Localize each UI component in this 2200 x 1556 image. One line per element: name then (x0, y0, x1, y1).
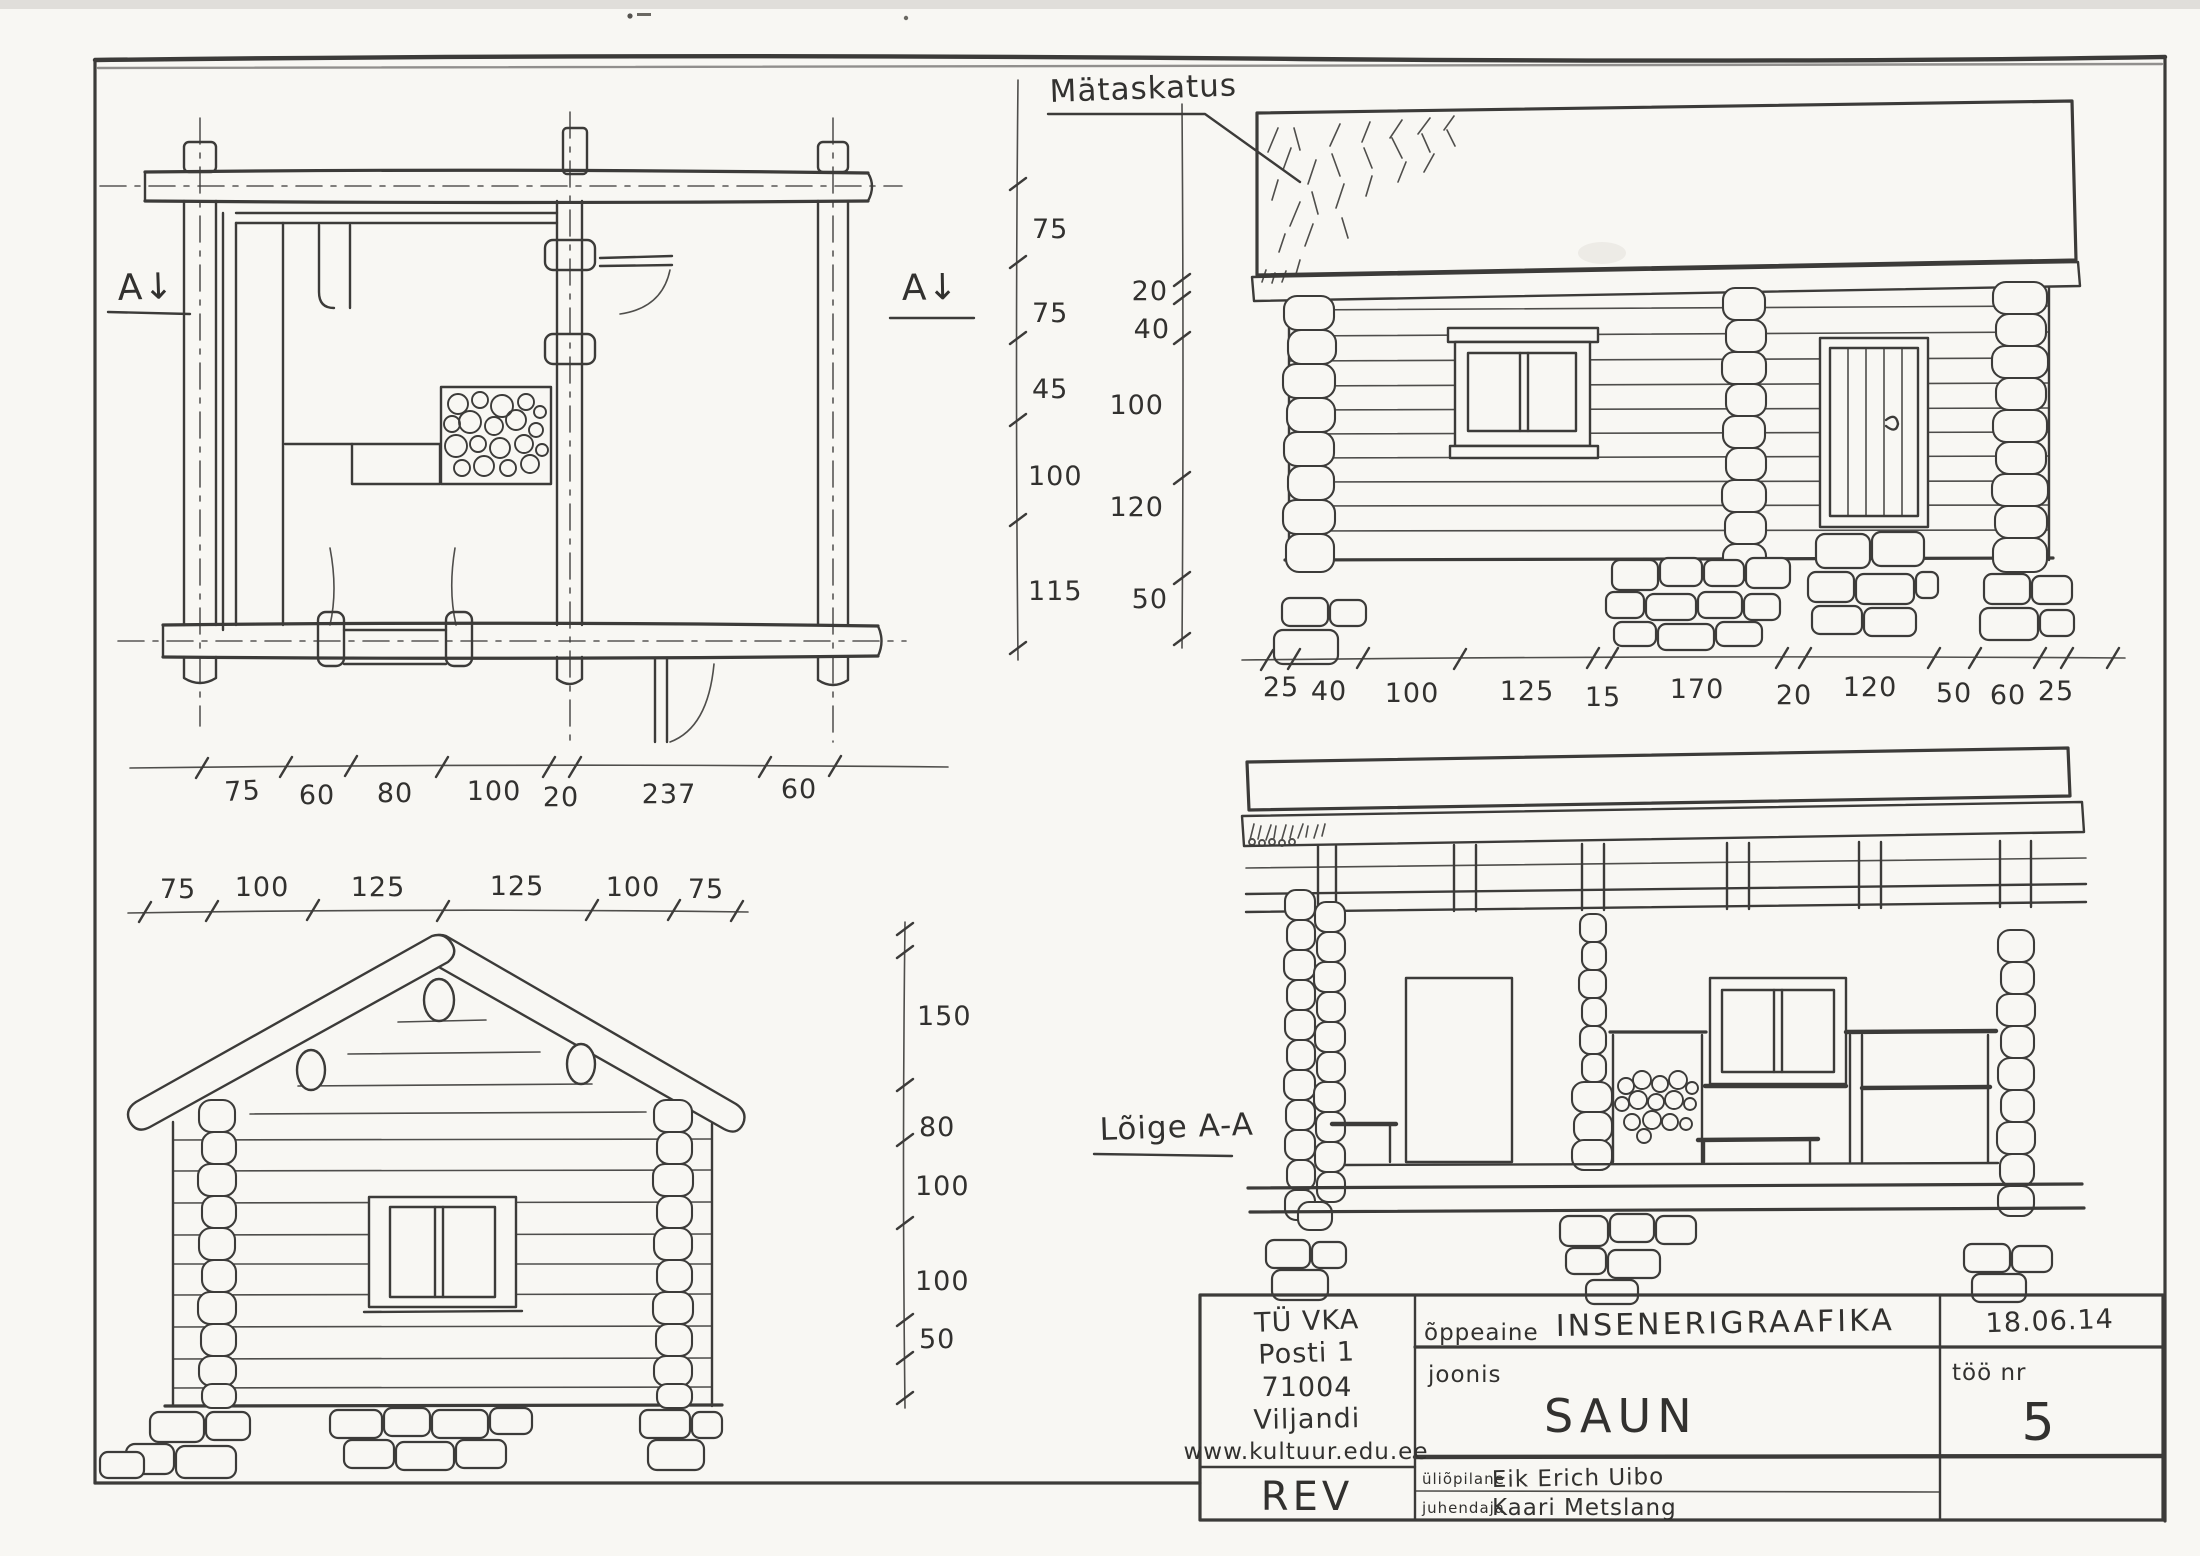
dim-label: 75 (160, 874, 196, 905)
left-stone-post (198, 1100, 236, 1408)
dim-label: 100 (915, 1171, 970, 1202)
section-cut-label: A↓ (901, 267, 959, 309)
section-a-a: Lõige A-A (1094, 748, 2086, 1304)
dim-label: 125 (1500, 676, 1555, 707)
dim-label: 115 (1028, 576, 1083, 607)
ridge-peg (424, 979, 454, 1021)
dim-label: 60 (781, 774, 817, 805)
dim-label: 20 (543, 782, 579, 813)
section-sill-band (1248, 1184, 2084, 1212)
dim-label: 45 (1032, 374, 1068, 405)
dim-label: 75 (688, 874, 724, 905)
elevation-log-wall (1285, 288, 2053, 560)
subject-value: INSENERIGRAAFIKA (1556, 1303, 1895, 1344)
elevation-stone-posts (1283, 282, 2048, 580)
section-heater-column (1572, 914, 1612, 1170)
section-right-pillar (1997, 930, 2035, 1216)
advisor-name: Kaari Metslang (1492, 1495, 1677, 1521)
dim-label: 50 (919, 1324, 955, 1355)
org-zip: 71004 (1262, 1372, 1353, 1403)
dim-label: 100 (235, 872, 290, 903)
org-name: TÜ VKA (1253, 1303, 1360, 1339)
elevation-door (1820, 338, 1928, 527)
section-floor (1345, 1163, 1998, 1165)
org-city: Viljandi (1253, 1403, 1360, 1436)
dim-label: 125 (351, 872, 406, 903)
section-roof (1242, 748, 2084, 846)
drawing-label: joonis (1427, 1362, 1501, 1388)
plan-dimension-line: 75 60 80 100 20 237 60 (130, 756, 948, 813)
elevation-window (1448, 328, 1598, 458)
dim-label: 20 (1776, 680, 1812, 711)
plan-stove-platform (285, 444, 440, 484)
front-elevation: Mätaskatus 20 40 100 120 50 25 40 100 12… (1048, 67, 2125, 713)
title-block: TÜ VKA Posti 1 71004 Viljandi www.kultuu… (1184, 1295, 2163, 1521)
section-door-panel (1406, 978, 1512, 1162)
heater-box (1610, 1032, 1706, 1162)
gable-height-scale: 150 80 100 100 50 (897, 922, 972, 1408)
dim-label: 80 (919, 1112, 955, 1143)
sauna-technical-drawing: A↓ A↓ 75 60 80 100 20 237 60 75 75 45 10… (0, 0, 2200, 1556)
dim-label: 150 (917, 1001, 972, 1032)
sod-edge-tufts (1249, 824, 1325, 846)
purlin-peg (297, 1050, 325, 1090)
elevation-dimension-line: 25 40 100 125 15 170 20 120 50 60 25 (1242, 648, 2125, 713)
dim-label: 125 (490, 871, 545, 902)
section-cut-marker-left: A↓ (108, 266, 190, 314)
floor-plan: A↓ A↓ 75 60 80 100 20 237 60 (100, 112, 974, 813)
scanned-drawing-sheet: A↓ A↓ 75 60 80 100 20 237 60 75 75 45 10… (0, 0, 2200, 1556)
work-number-value: 5 (2021, 1393, 2054, 1453)
section-foundations (1266, 1214, 2052, 1304)
dim-label: 20 (1132, 276, 1168, 307)
dim-label: 80 (377, 778, 413, 809)
title-block-main-cells: õppeaine INSENERIGRAAFIKA joonis SAUN ül… (1421, 1303, 1895, 1521)
section-cut-label: A↓ (117, 266, 175, 309)
plan-door-top (600, 256, 672, 314)
dim-label: 120 (1109, 492, 1164, 523)
section-left-pillar (1284, 890, 1345, 1230)
title-block-org-cell: TÜ VKA Posti 1 71004 Viljandi www.kultuu… (1184, 1303, 1429, 1520)
gable-dimension-line: 75 100 125 125 100 75 (128, 871, 748, 922)
dim-label: 75 (224, 775, 262, 808)
drawing-title: SAUN (1544, 1389, 1698, 1443)
dim-label: 25 (1263, 672, 1299, 703)
dim-label: 75 (1032, 298, 1068, 329)
dim-label: 100 (606, 872, 661, 903)
elevation-height-scale: 20 40 100 120 50 (1109, 104, 1190, 648)
dim-label: 40 (1134, 314, 1170, 345)
dim-label: 60 (1990, 680, 2026, 711)
dim-label: 120 (1843, 672, 1898, 703)
dim-label: 25 (2038, 676, 2074, 707)
sod-roof-label: Mätaskatus (1049, 67, 1238, 110)
section-label: Lõige A-A (1099, 1107, 1254, 1148)
dim-label: 100 (1028, 461, 1083, 492)
dim-label: 100 (1385, 678, 1440, 709)
gable-foundations (100, 1408, 722, 1478)
title-block-right-cells: 18.06.14 töö nr 5 (1952, 1304, 2114, 1453)
scan-artifacts (0, 0, 2200, 264)
dim-label: 100 (467, 776, 522, 807)
revision-label: REV (1261, 1474, 1353, 1520)
section-bench-center (1698, 1139, 1818, 1162)
plan-door-bottom (655, 658, 714, 742)
section-wall-plate (1246, 841, 2086, 912)
section-label-group: Lõige A-A (1094, 1107, 1254, 1156)
elevation-roof (1252, 101, 2080, 301)
section-window (1710, 978, 1846, 1084)
dim-label: 50 (1132, 584, 1168, 615)
elevation-foundations (1274, 532, 2074, 664)
dim-label: 237 (642, 779, 697, 810)
subject-label: õppeaine (1424, 1320, 1539, 1346)
dim-label: 170 (1670, 674, 1725, 705)
section-interior (1248, 978, 2084, 1212)
dim-label: 100 (915, 1266, 970, 1297)
dim-label: 40 (1311, 676, 1347, 707)
gable-elevation: 75 100 125 125 100 75 (100, 871, 972, 1478)
purlin-peg (567, 1044, 595, 1084)
student-name: Eik Erich Uibo (1492, 1464, 1665, 1493)
right-stone-post (1992, 282, 2048, 572)
org-website: www.kultuur.edu.ee (1184, 1439, 1429, 1465)
date-value: 18.06.14 (1985, 1304, 2114, 1339)
right-stone-post (653, 1100, 693, 1408)
middle-stone-post (1722, 288, 1766, 580)
sod-roof-hatching (1262, 116, 1455, 283)
gable-window (364, 1197, 522, 1312)
left-stone-post (1283, 296, 1336, 572)
plan-chimney-duct (319, 225, 350, 308)
org-street: Posti 1 (1258, 1336, 1356, 1370)
sod-roof-callout: Mätaskatus (1048, 67, 1300, 182)
section-shelf-unit (1846, 1031, 1996, 1162)
plan-height-scale: 75 75 45 100 115 (1010, 80, 1083, 660)
plan-stove-stones (441, 387, 551, 484)
dim-label: 50 (1936, 678, 1972, 709)
work-number-label: töö nr (1952, 1360, 2027, 1386)
dim-label: 75 (1032, 214, 1068, 245)
dim-label: 100 (1109, 390, 1164, 421)
section-cut-marker-right: A↓ (890, 267, 974, 318)
dim-label: 15 (1585, 682, 1621, 713)
dim-label: 60 (299, 780, 335, 811)
